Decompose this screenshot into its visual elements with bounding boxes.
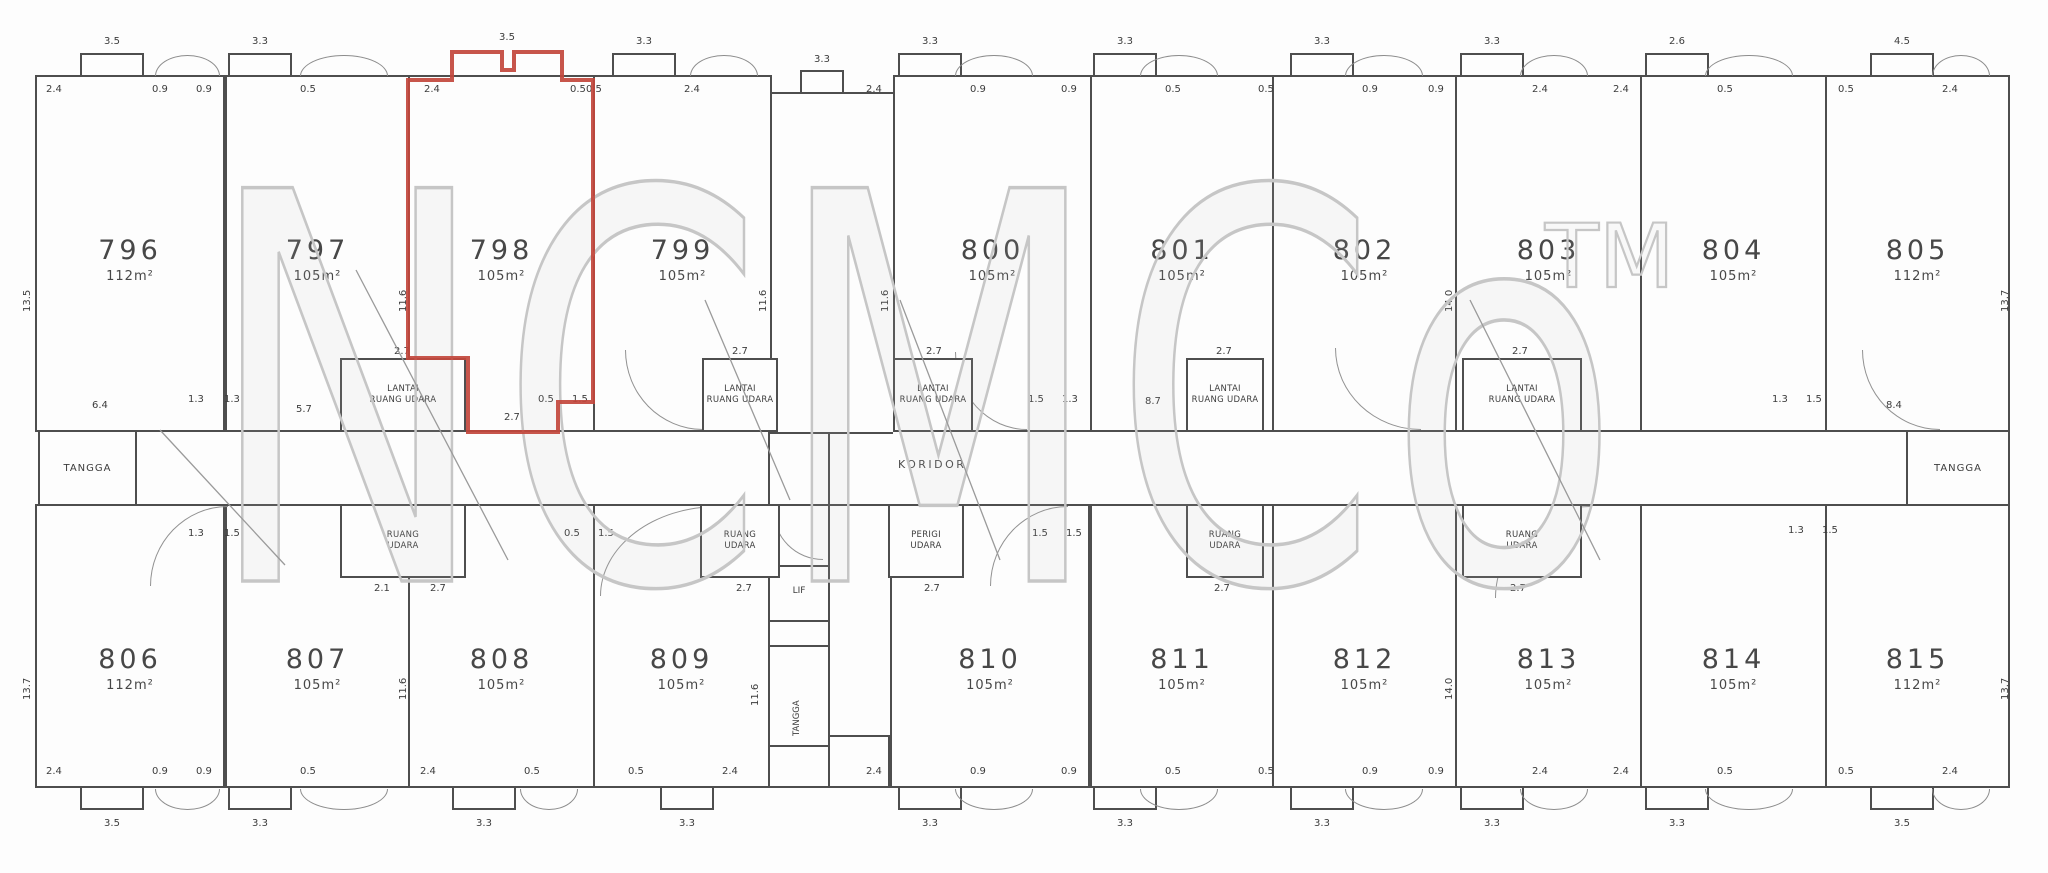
dimension-label: 5.7 xyxy=(296,404,312,415)
floor-arc xyxy=(1520,789,1588,810)
dimension-label: 11.6 xyxy=(880,290,891,312)
dimension-label: 0.5 xyxy=(1838,766,1854,777)
dimension-label: 3.5 xyxy=(1894,818,1910,829)
dimension-label: 2.7 xyxy=(1214,583,1230,594)
dimension-label: 2.4 xyxy=(1942,84,1958,95)
dimension-label: 2.1 xyxy=(374,583,390,594)
dimension-label: 11.6 xyxy=(398,678,409,700)
airspace-box-label: UDARA xyxy=(910,541,941,552)
airspace-box: LANTAI RUANG UDARA xyxy=(1462,358,1582,432)
airspace-box-label: RUANG UDARA xyxy=(370,395,437,406)
dimension-label: 2.4 xyxy=(1613,84,1629,95)
dimension-label: 6.4 xyxy=(92,400,108,411)
dimension-label: 0.5 xyxy=(1838,84,1854,95)
airspace-box-label: RUANG UDARA xyxy=(900,395,967,406)
roof-arc xyxy=(1520,55,1588,76)
dimension-label: 3.3 xyxy=(679,818,695,829)
dimension-label: 2.4 xyxy=(420,766,436,777)
balcony-bump xyxy=(80,788,144,810)
unit-label: 798105m² xyxy=(410,235,593,284)
airspace-box-label: RUANG UDARA xyxy=(1192,395,1259,406)
balcony-bump xyxy=(1870,788,1934,810)
airspace-box-label: PERIGI xyxy=(911,530,941,541)
dimension-label: 3.5 xyxy=(104,36,120,47)
dimension-label: 8.7 xyxy=(1145,396,1161,407)
dimension-label: 0.5 xyxy=(1717,84,1733,95)
dimension-label: 3.3 xyxy=(1314,818,1330,829)
airspace-box-label: RUANG xyxy=(724,530,756,541)
dimension-label: 0.5 xyxy=(1258,766,1274,777)
dimension-label: 1.5 xyxy=(598,528,614,539)
unit-812[interactable]: 812105m² xyxy=(1272,504,1457,788)
dimension-label: 2.4 xyxy=(866,84,882,95)
core-wall xyxy=(768,645,830,647)
dimension-label: 1.3 xyxy=(188,394,204,405)
unit-label: 815112m² xyxy=(1827,644,2008,693)
roof-arc xyxy=(690,55,758,76)
airspace-box-label: LANTAI xyxy=(724,384,756,395)
airspace-box: RUANG UDARA xyxy=(1462,504,1582,578)
balcony-bump xyxy=(612,53,676,75)
dimension-label: 2.7 xyxy=(732,346,748,357)
balcony-bump xyxy=(1460,788,1524,810)
unit-label: 814105m² xyxy=(1642,644,1825,693)
dimension-label: 2.7 xyxy=(924,583,940,594)
balcony-bump xyxy=(452,788,516,810)
dimension-label: 1.5 xyxy=(1822,525,1838,536)
floor-arc xyxy=(955,789,1033,810)
airspace-box-label: UDARA xyxy=(1506,541,1537,552)
dimension-label: 0.5 xyxy=(1165,84,1181,95)
airspace-box-label: RUANG xyxy=(387,530,419,541)
unit-label: 810105m² xyxy=(892,644,1088,693)
floor-arc xyxy=(155,789,220,810)
dimension-label: 0.5 xyxy=(570,84,586,95)
corridor-label: KORIDOR xyxy=(898,458,966,471)
dimension-label: 2.7 xyxy=(1216,346,1232,357)
unit-label: 801105m² xyxy=(1092,235,1272,284)
dimension-label: 0.9 xyxy=(196,766,212,777)
dimension-label: 1.5 xyxy=(1028,394,1044,405)
airspace-box-label: RUANG xyxy=(1506,530,1538,541)
dimension-label: 2.4 xyxy=(684,84,700,95)
unit-label: 805112m² xyxy=(1827,235,2008,284)
dimension-label: 1.5 xyxy=(1806,394,1822,405)
dimension-label: 13.5 xyxy=(22,290,33,312)
airspace-box: LANTAI RUANG UDARA xyxy=(893,358,973,432)
dimension-label: 1.5 xyxy=(1066,528,1082,539)
dimension-label: 0.9 xyxy=(152,84,168,95)
dimension-label: 2.4 xyxy=(866,766,882,777)
dimension-label: 11.6 xyxy=(750,684,761,706)
balcony-bump xyxy=(228,788,292,810)
unit-label: 811105m² xyxy=(1092,644,1272,693)
airspace-box: LANTAI RUANG UDARA xyxy=(1186,358,1264,432)
unit-814[interactable]: 814105m² xyxy=(1640,504,1827,788)
dimension-label: 2.7 xyxy=(504,412,520,423)
roof-arc xyxy=(955,55,1033,76)
unit-label: 806112m² xyxy=(37,644,223,693)
dimension-label: 0.9 xyxy=(1428,84,1444,95)
dimension-label: 0.9 xyxy=(1362,84,1378,95)
airspace-box-label: LANTAI xyxy=(387,384,419,395)
dimension-label: 0.9 xyxy=(1061,766,1077,777)
dimension-label: 2.7 xyxy=(1512,346,1528,357)
unit-label: 802105m² xyxy=(1274,235,1455,284)
dimension-label: 1.3 xyxy=(1772,394,1788,405)
airspace-box-label: LANTAI xyxy=(917,384,949,395)
dimension-label: 2.7 xyxy=(736,583,752,594)
dimension-label: 2.6 xyxy=(1669,36,1685,47)
airspace-box-label: RUANG xyxy=(1209,530,1241,541)
balcony-bump xyxy=(1645,53,1709,75)
dimension-label: 2.4 xyxy=(722,766,738,777)
core-annex-wall xyxy=(830,735,890,737)
airspace-box-label: UDARA xyxy=(1209,541,1240,552)
balcony-bump xyxy=(228,53,292,75)
dimension-label: 3.3 xyxy=(1117,36,1133,47)
dimension-label: 13.7 xyxy=(22,678,33,700)
floor-arc xyxy=(1345,789,1423,810)
unit-label: 807105m² xyxy=(227,644,408,693)
dimension-label: 11.6 xyxy=(758,290,769,312)
dimension-label: 0.5 xyxy=(628,766,644,777)
unit-label: 804105m² xyxy=(1642,235,1825,284)
dimension-label: 0.9 xyxy=(1428,766,1444,777)
dimension-label: 2.7 xyxy=(430,583,446,594)
dimension-label: 13.7 xyxy=(2000,678,2011,700)
unit-label: 812105m² xyxy=(1274,644,1455,693)
airspace-box: LANTAI RUANG UDARA xyxy=(340,358,466,432)
balcony-bump xyxy=(898,788,962,810)
balcony-bump xyxy=(80,53,144,75)
dimension-label: 3.3 xyxy=(922,36,938,47)
balcony-bump xyxy=(1870,53,1934,75)
dimension-label: 1.3 xyxy=(1788,525,1804,536)
unit-804[interactable]: 804105m² xyxy=(1640,75,1827,432)
core-annex-wall xyxy=(888,735,890,788)
dimension-label: 0.9 xyxy=(1362,766,1378,777)
dimension-label: 0.5 xyxy=(586,84,602,95)
dimension-label: 0.5 xyxy=(1165,766,1181,777)
dimension-label: 3.3 xyxy=(1484,818,1500,829)
airspace-box: PERIGI UDARA xyxy=(888,504,964,578)
dimension-label: 3.3 xyxy=(252,36,268,47)
dimension-label: 2.4 xyxy=(46,84,62,95)
floor-plan: NCMCo TM 796112m² 797105m² 798105m² 7991… xyxy=(0,0,2048,873)
stairs-label: TANGGA xyxy=(64,463,112,474)
floor-arc xyxy=(300,789,388,810)
dimension-label: 13.7 xyxy=(2000,290,2011,312)
floor-arc xyxy=(1932,789,1990,810)
unit-label: 813105m² xyxy=(1457,644,1640,693)
dimension-label: 3.3 xyxy=(1669,818,1685,829)
airspace-box: RUANG UDARA xyxy=(700,504,780,578)
dimension-label: 0.5 xyxy=(564,528,580,539)
balcony-bump xyxy=(898,53,962,75)
airspace-box: LANTAI RUANG UDARA xyxy=(702,358,778,432)
dimension-label: 0.5 xyxy=(1258,84,1274,95)
airspace-box: RUANG UDARA xyxy=(1186,504,1264,578)
dimension-label: 2.4 xyxy=(1613,766,1629,777)
dimension-label: 0.5 xyxy=(300,84,316,95)
balcony-bump xyxy=(1460,53,1524,75)
balcony-bump xyxy=(660,788,714,810)
core-stairs-label: TANGGA xyxy=(792,700,802,736)
dimension-label: 3.3 xyxy=(922,818,938,829)
dimension-label: 0.5 xyxy=(300,766,316,777)
floor-arc xyxy=(520,789,578,810)
dimension-label: 0.5 xyxy=(524,766,540,777)
unit-796[interactable]: 796112m² xyxy=(35,75,225,432)
dimension-label: 4.5 xyxy=(1894,36,1910,47)
dimension-label: 0.9 xyxy=(970,84,986,95)
dimension-label: 2.4 xyxy=(1532,84,1548,95)
airspace-box-label: LANTAI xyxy=(1506,384,1538,395)
core-wall xyxy=(768,745,830,747)
dimension-label: 0.9 xyxy=(152,766,168,777)
unit-label: 796112m² xyxy=(37,235,223,284)
roof-arc xyxy=(1705,55,1793,76)
unit-label: 797105m² xyxy=(227,235,408,284)
dimension-label: 2.4 xyxy=(1532,766,1548,777)
dimension-label: 3.3 xyxy=(476,818,492,829)
dimension-label: 1.5 xyxy=(572,394,588,405)
airspace-box-label: RUANG UDARA xyxy=(1489,395,1556,406)
dimension-label: 2.4 xyxy=(46,766,62,777)
dimension-label: 3.3 xyxy=(1484,36,1500,47)
dimension-label: 3.5 xyxy=(104,818,120,829)
roof-arc xyxy=(1345,55,1423,76)
dimension-label: 3.3 xyxy=(814,54,830,65)
dimension-label: 2.7 xyxy=(926,346,942,357)
dimension-label: 3.3 xyxy=(1314,36,1330,47)
airspace-box-label: LANTAI xyxy=(1209,384,1241,395)
stairs-right: TANGGA xyxy=(1906,430,2010,506)
dimension-label: 2.4 xyxy=(1942,766,1958,777)
roof-arc xyxy=(155,55,220,76)
unit-label: 803105m² xyxy=(1457,235,1640,284)
dimension-label: 1.3 xyxy=(1062,394,1078,405)
airspace-box-label: UDARA xyxy=(724,541,755,552)
dimension-label: 0.9 xyxy=(970,766,986,777)
dimension-label: 3.3 xyxy=(636,36,652,47)
dimension-label: 11.6 xyxy=(398,290,409,312)
dimension-label: 1.3 xyxy=(224,394,240,405)
airspace-box: RUANG UDARA xyxy=(340,504,466,578)
roof-arc xyxy=(1932,55,1990,76)
unit-label: 799105m² xyxy=(595,235,770,284)
unit-label: 800105m² xyxy=(895,235,1090,284)
lift-label: LIF xyxy=(768,586,830,596)
dimension-label: 0.5 xyxy=(1717,766,1733,777)
dimension-label: 3.3 xyxy=(252,818,268,829)
airspace-box-label: RUANG UDARA xyxy=(707,395,774,406)
dimension-label: 0.5 xyxy=(538,394,554,405)
dimension-label: 14.0 xyxy=(1444,290,1455,312)
roof-arc xyxy=(300,55,388,76)
unit-label: 808105m² xyxy=(410,644,593,693)
balcony-bump xyxy=(1645,788,1709,810)
dimension-label: 0.9 xyxy=(196,84,212,95)
unit-label: 809105m² xyxy=(595,644,768,693)
dimension-label: 0.9 xyxy=(1061,84,1077,95)
balcony-bump xyxy=(1290,53,1354,75)
balcony-bump xyxy=(800,70,844,92)
airspace-box-label: UDARA xyxy=(387,541,418,552)
dimension-label: 14.0 xyxy=(1444,678,1455,700)
dimension-label: 2.7 xyxy=(394,346,410,357)
floor-arc xyxy=(1705,789,1793,810)
dimension-label: 2.4 xyxy=(424,84,440,95)
stairs-left: TANGGA xyxy=(38,430,137,506)
dimension-label: 3.3 xyxy=(1117,818,1133,829)
dimension-label: 3.5 xyxy=(499,32,515,43)
core-wall xyxy=(768,620,830,622)
stairs-label: TANGGA xyxy=(1934,463,1982,474)
unit-815[interactable]: 815112m² xyxy=(1825,504,2010,788)
